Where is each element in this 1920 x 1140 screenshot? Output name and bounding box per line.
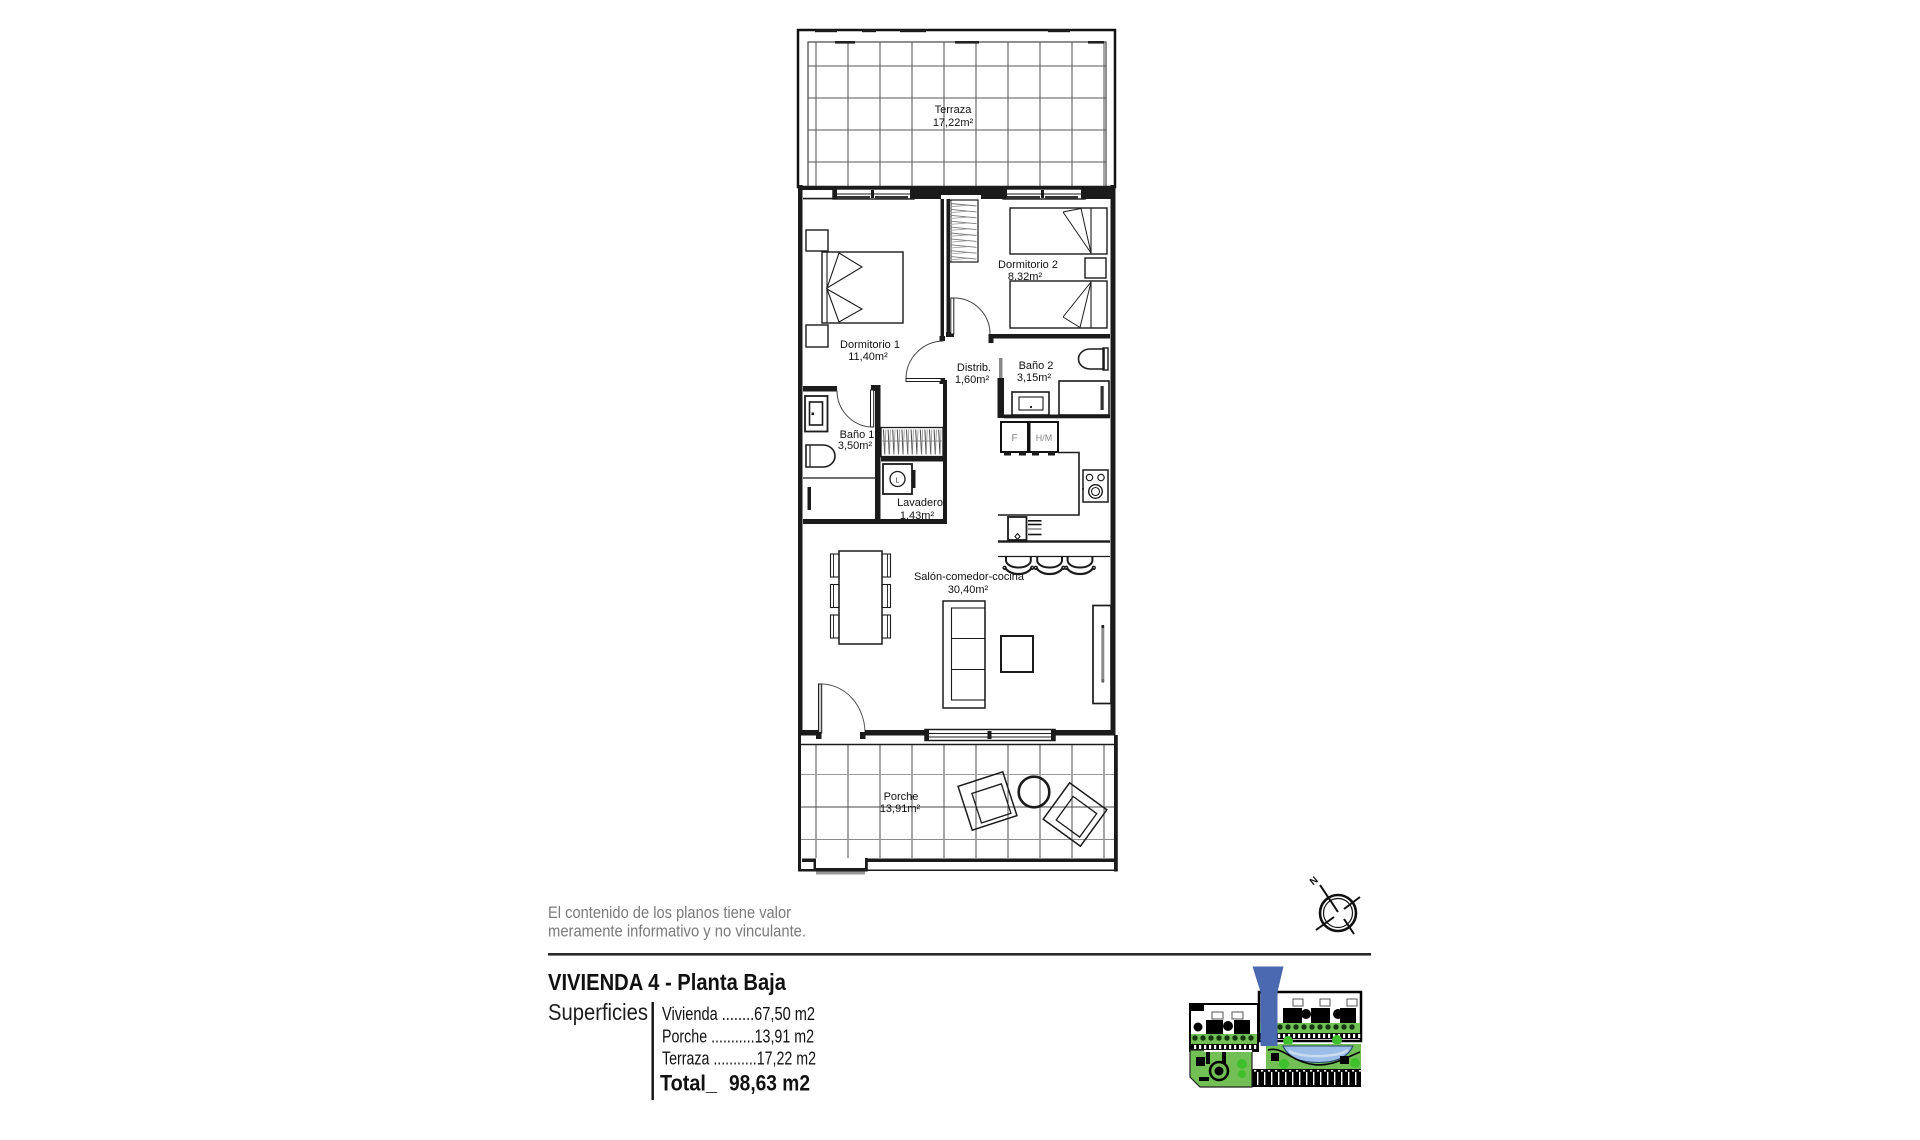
svg-text:Vivienda ........67,50 m2: Vivienda ........67,50 m2 [662,1004,815,1024]
svg-text:H/M: H/M [1036,433,1053,443]
svg-text:3,15m²: 3,15m² [1017,372,1052,384]
svg-text:Terraza ...........17,22 m2: Terraza ...........17,22 m2 [662,1049,816,1069]
svg-text:N: N [1308,875,1321,888]
svg-text:3,50m²: 3,50m² [838,440,873,452]
svg-text:meramente informativo y no vin: meramente informativo y no vinculante. [548,923,806,941]
svg-text:Salón-comedor-cocina: Salón-comedor-cocina [914,571,1025,583]
svg-text:1,60m²: 1,60m² [955,374,990,386]
svg-text:El contenido de los planos tie: El contenido de los planos tiene valor [548,904,791,922]
svg-text:Total_: Total_ [660,1071,717,1096]
svg-text:Lavadero: Lavadero [897,497,943,509]
svg-text:Porche: Porche [884,791,919,803]
svg-text:Dormitorio 1: Dormitorio 1 [840,339,900,351]
svg-text:Terraza: Terraza [935,104,973,116]
svg-text:13,91m²: 13,91m² [880,803,921,815]
svg-text:98,63 m2: 98,63 m2 [729,1071,810,1096]
svg-text:Superficies: Superficies [548,999,648,1025]
svg-text:L: L [896,478,900,485]
svg-text:1,43m²: 1,43m² [900,510,935,522]
svg-text:Dormitorio 2: Dormitorio 2 [998,259,1058,271]
svg-text:VIVIENDA 4 - Planta Baja: VIVIENDA 4 - Planta Baja [548,969,787,995]
svg-text:11,40m²: 11,40m² [848,351,888,363]
svg-text:Distrib.: Distrib. [957,362,991,374]
svg-text:17,22m²: 17,22m² [933,117,974,129]
svg-text:Baño 2: Baño 2 [1019,360,1054,372]
svg-text:30,40m²: 30,40m² [948,584,989,596]
svg-text:Porche ...........13,91 m2: Porche ...........13,91 m2 [662,1027,814,1047]
svg-text:F: F [1011,433,1017,444]
